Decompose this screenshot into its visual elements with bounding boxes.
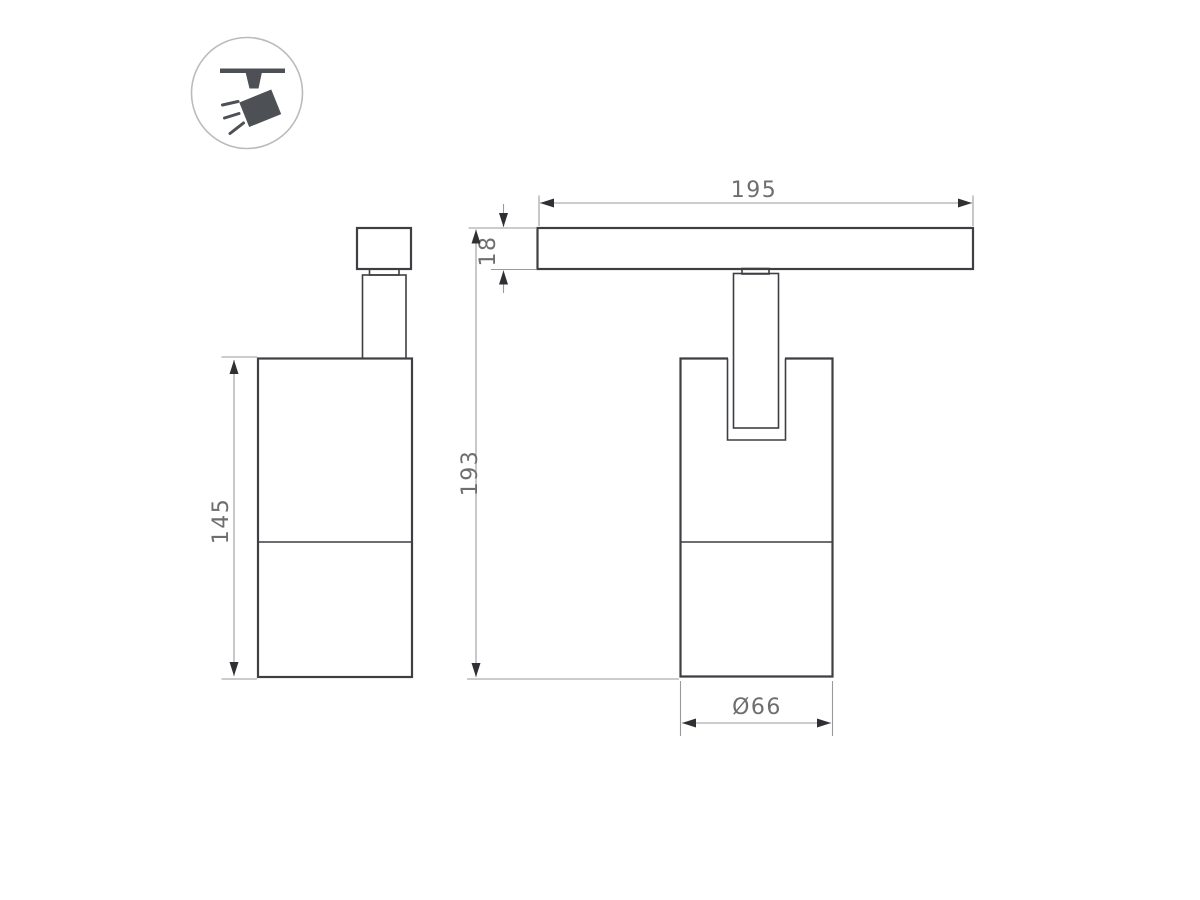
front-view-stem <box>734 274 779 429</box>
side-view-stem <box>363 275 407 359</box>
dim-track-height-label: 18 <box>476 236 501 267</box>
technical-drawing: 145 195 18 193 Ø66 <box>0 0 1200 900</box>
dim-body-height: 145 <box>209 357 257 679</box>
dim-total-height: 193 <box>458 230 679 680</box>
front-view-track <box>538 228 974 269</box>
front-view-body <box>681 359 833 677</box>
dim-track-height: 18 <box>469 204 537 293</box>
icon-circle-border <box>192 38 303 149</box>
front-view <box>538 228 974 677</box>
dim-total-height-label: 193 <box>458 450 483 497</box>
dim-body-diameter-label: Ø66 <box>732 695 782 720</box>
side-view-body <box>258 359 412 678</box>
track-spotlight-icon <box>192 38 303 149</box>
side-view-track-adapter-head <box>357 228 411 269</box>
dim-track-length-label: 195 <box>731 178 778 203</box>
drawing-canvas: 145 195 18 193 Ø66 <box>0 0 1200 900</box>
dim-body-diameter: Ø66 <box>681 681 833 736</box>
side-view <box>258 228 412 677</box>
dim-track-length: 195 <box>539 178 973 226</box>
dim-body-height-label: 145 <box>209 498 234 545</box>
